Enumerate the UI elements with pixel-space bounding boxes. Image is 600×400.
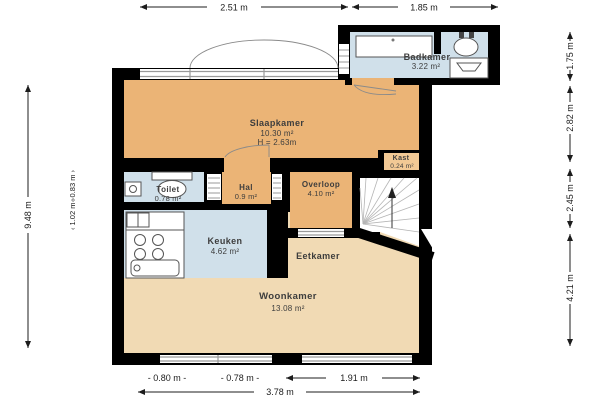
dim-bottom-2: - 0.78 m - [221, 373, 260, 383]
shower-tray-icon [450, 58, 488, 78]
label-overloop-area: 4.10 m² [308, 189, 335, 198]
label-overloop-name: Overloop [302, 180, 340, 189]
door-toilet [207, 174, 221, 200]
sink-icon [454, 38, 478, 56]
dim-right-3: 2.45 m [565, 184, 575, 212]
label-eetkamer-name: Eetkamer [296, 251, 340, 261]
label-slaapkamer-area: 10.30 m² [260, 129, 293, 138]
label-badkamer-area: 3.22 m² [412, 62, 441, 71]
label-keuken-area: 4.62 m² [211, 247, 240, 256]
label-kast-area: 0.24 m² [390, 163, 414, 170]
hal-door-opening [224, 158, 270, 172]
wall-stub-badkamer [434, 32, 441, 54]
toilet-tank-icon [152, 172, 192, 180]
label-hal-name: Hal [239, 183, 253, 192]
window-top [140, 69, 338, 79]
toilet-sink-icon [125, 182, 141, 196]
label-hal-area: 0.9 m² [235, 192, 258, 201]
label-slaapkamer-name: Slaapkamer [250, 118, 305, 128]
dim-bottom-3: 1.91 m [340, 373, 368, 383]
tap-icon [469, 32, 474, 38]
dim-right-1: 1.75 m [565, 42, 575, 70]
label-badkamer-name: Badkamer [404, 52, 451, 62]
label-keuken-name: Keuken [208, 236, 243, 246]
label-woonkamer-area: 13.08 m² [271, 304, 304, 313]
dim-right-2: 2.82 m [565, 104, 575, 132]
dim-top-left: 2.51 m [220, 3, 248, 13]
badkamer-window [339, 44, 349, 74]
label-slaapkamer-height: H = 2.63m [258, 138, 297, 147]
window-bottom-right [302, 355, 412, 363]
dim-left-total: 9.48 m [23, 201, 33, 229]
window-bottom-left [160, 355, 272, 363]
dim-left-inner-2: ‹ 1.02 m › [68, 197, 77, 230]
dim-bottom-1: - 0.80 m - [148, 373, 187, 383]
dim-bottom-total: 3.78 m [266, 387, 294, 397]
floorplan: Slaapkamer 10.30 m² H = 2.63m Badkamer 3… [0, 0, 600, 400]
label-toilet-area: 0.78 m² [155, 194, 182, 203]
overloop-doorway [298, 229, 344, 237]
keuken-fixtures [126, 212, 184, 278]
room-woonkamer [124, 278, 288, 353]
badkamer-door-opening [352, 78, 394, 85]
wall-kast-left [378, 150, 384, 172]
label-kast-name: Kast [393, 155, 410, 162]
floorplan-svg: Slaapkamer 10.30 m² H = 2.63m Badkamer 3… [0, 0, 600, 400]
wall-kast-top [382, 150, 419, 153]
dim-top-right: 1.85 m [410, 3, 438, 13]
label-woonkamer-name: Woonkamer [259, 291, 317, 302]
dim-right-4: 4.21 m [565, 274, 575, 302]
tap-icon [459, 32, 464, 38]
door-overloop [272, 174, 282, 200]
label-toilet-name: Toilet [156, 185, 179, 194]
dim-left-inner-1: ‹ 0.83 m › [68, 169, 77, 202]
